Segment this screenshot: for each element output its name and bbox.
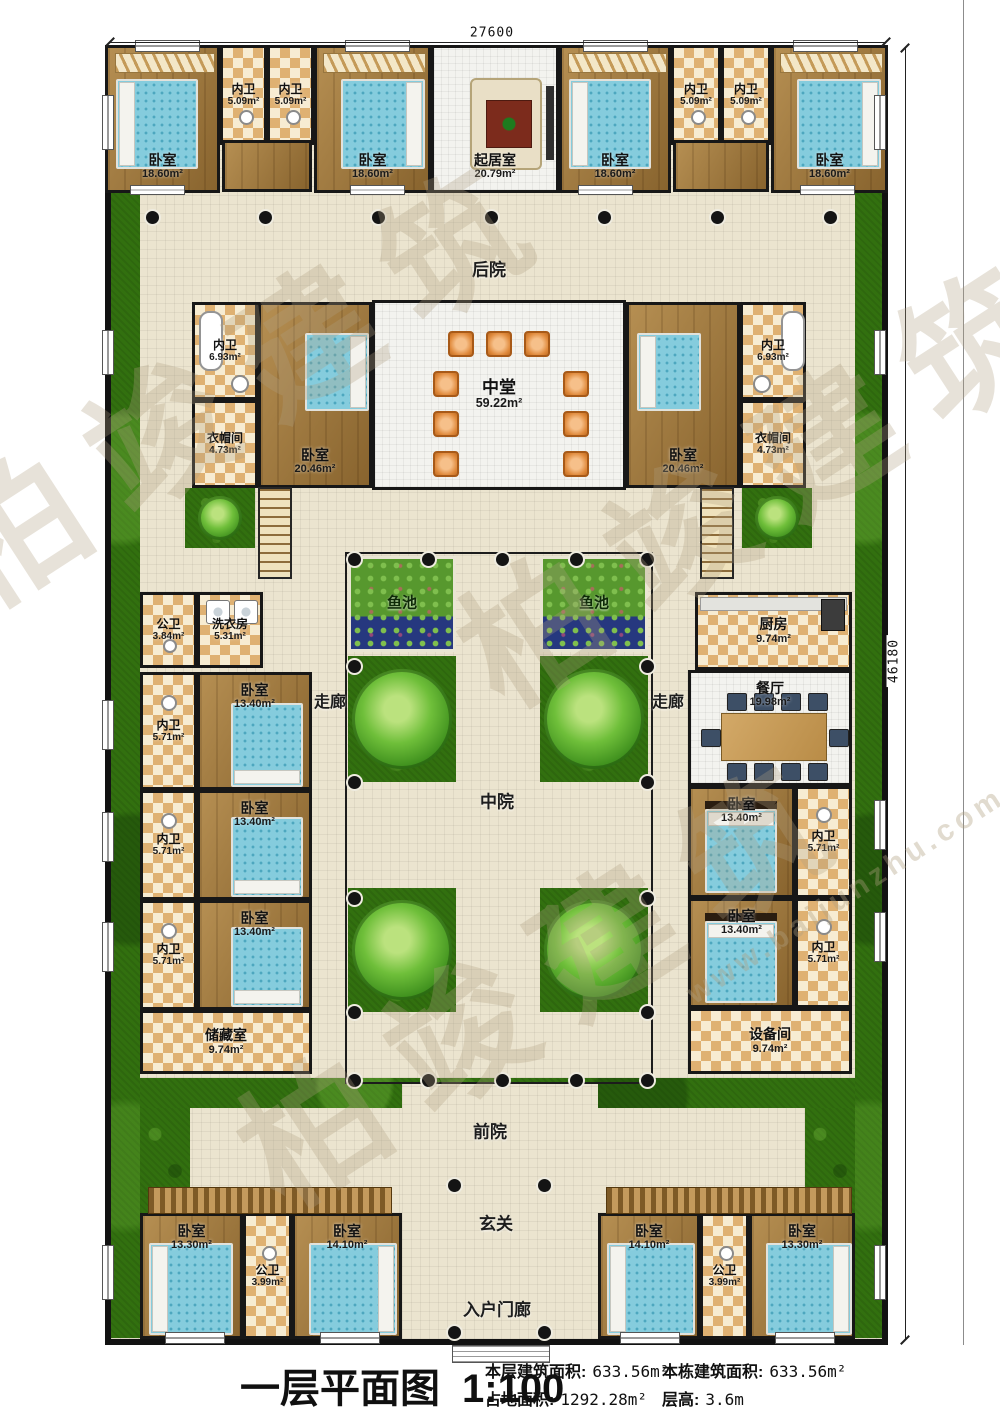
room-area: 13.40m² (721, 812, 762, 824)
column-dot (346, 774, 363, 791)
drawing-title-text: 一层平面图 (240, 1367, 440, 1411)
column-dot (639, 774, 656, 791)
column-dot (446, 1177, 463, 1194)
stat-value: 633.56m² (769, 1362, 846, 1381)
column-dot (346, 1004, 363, 1021)
sink (816, 919, 832, 935)
room-area: 5.71m² (808, 843, 840, 854)
column-dot (494, 551, 511, 568)
stat-label: 层高: (662, 1392, 699, 1409)
wardrobe (568, 53, 667, 73)
stat-floor-area: 本层建筑面积:633.56m² (485, 1358, 669, 1382)
room-area: 5.71m² (808, 954, 840, 965)
room-name: 餐厅 (750, 681, 791, 696)
wardrobe (115, 53, 215, 73)
room-bedroom: 卧室18.60m² (771, 45, 888, 193)
room-bedroom: 卧室14.10m² (598, 1213, 700, 1339)
room-bath: 公卫3.99m² (700, 1213, 749, 1339)
room-area: 5.09m² (275, 96, 307, 107)
room-name: 卧室 (234, 683, 275, 698)
room-name: 内卫 (209, 339, 241, 352)
stat-value: 633.56m² (592, 1362, 669, 1381)
window (874, 1245, 886, 1300)
room-area: 13.30m² (171, 1239, 212, 1251)
window (874, 912, 886, 962)
room-area: 5.71m² (153, 956, 185, 967)
column-dot (346, 890, 363, 907)
room-name: 卧室 (234, 801, 275, 816)
pergola-left (148, 1187, 392, 1214)
sink (239, 110, 254, 125)
room-area: 5.31m² (212, 631, 248, 642)
room-name: 内卫 (730, 83, 762, 96)
room-bedroom: 卧室13.40m² (688, 786, 795, 898)
room-bath: 内卫6.93m² (192, 302, 258, 400)
room-area: 18.60m² (595, 168, 636, 180)
stat-label: 本栋建筑面积: (662, 1364, 763, 1381)
pergola-right (606, 1187, 852, 1214)
sink (262, 1246, 277, 1261)
column-dot (446, 1324, 463, 1341)
room-bath: 内卫5.09m² (671, 45, 721, 145)
room-name: 中堂 (476, 379, 523, 398)
room-area: 3.84m² (153, 631, 185, 642)
column-dot (536, 1177, 553, 1194)
room-area: 18.60m² (809, 168, 850, 180)
room-area: 6.93m² (757, 352, 789, 363)
column-dot (709, 209, 726, 226)
column-dot (639, 1072, 656, 1089)
room-name: 卧室 (327, 1224, 368, 1239)
tv-cabinet (546, 86, 554, 160)
dining-chair (808, 693, 828, 711)
column-dot (639, 658, 656, 675)
dining-chair (727, 693, 747, 711)
stairs-left (258, 487, 292, 579)
window (102, 1245, 114, 1300)
room-name: 衣帽间 (207, 432, 243, 445)
window (165, 1332, 225, 1344)
column-dot (494, 1072, 511, 1089)
room-bedroom: 卧室14.10m² (292, 1213, 402, 1339)
bed (766, 1243, 852, 1335)
room-area: 13.30m² (782, 1239, 823, 1251)
column-dot (483, 209, 500, 226)
room-name: 卧室 (352, 153, 393, 168)
room-name: 内卫 (275, 83, 307, 96)
corridor-right-label: 走廊 (652, 688, 684, 712)
room-area: 3.99m² (709, 1277, 741, 1288)
window (874, 95, 886, 150)
room-bedroom: 卧室13.40m² (197, 900, 312, 1010)
room-bath: 公卫3.99m² (243, 1213, 292, 1339)
column-dot (144, 209, 161, 226)
room-area: 14.10m² (327, 1239, 368, 1251)
column-dot (420, 551, 437, 568)
courtyard-boundary (345, 552, 653, 1084)
room-name: 内卫 (228, 83, 260, 96)
column-dot (536, 1324, 553, 1341)
room-name: 内卫 (680, 83, 712, 96)
room-area: 5.09m² (680, 96, 712, 107)
chair (486, 331, 512, 357)
chair (433, 371, 459, 397)
bedroom-hall (673, 140, 769, 192)
room-name: 卧室 (142, 153, 183, 168)
bed (231, 703, 303, 787)
window (320, 1332, 380, 1344)
window (874, 330, 886, 375)
chair (563, 371, 589, 397)
sink (719, 1246, 734, 1261)
porch-label: 入户门廊 (463, 1296, 531, 1321)
stat-value: 3.6m (705, 1390, 744, 1409)
wardrobe (780, 53, 883, 73)
stat-label: 本层建筑面积: (485, 1364, 586, 1381)
room-name: 卧室 (721, 909, 762, 924)
dining-chair (808, 763, 828, 781)
room-utility: 设备间9.74m² (688, 1008, 852, 1074)
bed (637, 333, 701, 411)
bed (231, 817, 303, 897)
bed (309, 1243, 397, 1335)
stat-floor-height: 层高:3.6m (662, 1386, 744, 1410)
room-name: 卧室 (595, 153, 636, 168)
window (130, 185, 185, 195)
room-bedroom: 卧室18.60m² (314, 45, 431, 193)
bed (305, 333, 369, 411)
room-name: 卧室 (234, 911, 275, 926)
sink (161, 695, 177, 711)
midyard-label: 中院 (480, 788, 514, 813)
chair (448, 331, 474, 357)
bed (149, 1243, 233, 1335)
room-name: 卧室 (171, 1224, 212, 1239)
room-area: 9.74m² (749, 1043, 791, 1055)
room-bath: 公卫3.84m² (140, 592, 197, 668)
sink (816, 807, 832, 823)
bed (607, 1243, 695, 1335)
backyard-label: 后院 (472, 256, 506, 281)
room-main-hall: 中堂59.22m² (372, 300, 626, 490)
rug (486, 100, 532, 148)
column-dot (346, 551, 363, 568)
window (775, 1332, 835, 1344)
window (800, 185, 855, 195)
room-name: 卧室 (629, 1224, 670, 1239)
stat-land-area: 占地面积:1292.28m² (485, 1386, 647, 1410)
tree (755, 496, 799, 540)
room-area: 13.40m² (234, 698, 275, 710)
bedroom-hall (222, 140, 312, 192)
room-bath: 内卫5.71m² (795, 786, 852, 898)
room-name: 洗衣房 (212, 618, 248, 631)
dining-table (721, 713, 827, 761)
column-dot (346, 658, 363, 675)
dining-chair (727, 763, 747, 781)
window (102, 330, 114, 375)
window (102, 812, 114, 862)
room-laundry: 洗衣房5.31m² (197, 592, 263, 668)
room-living: 起居室20.79m² (431, 45, 559, 193)
room-area: 9.74m² (756, 633, 791, 645)
column-dot (596, 209, 613, 226)
room-name: 公卫 (709, 1264, 741, 1277)
stat-value: 1292.28m² (560, 1390, 647, 1409)
corridor-left-label: 走廊 (314, 688, 346, 712)
chair (524, 331, 550, 357)
chair (563, 411, 589, 437)
room-area: 5.71m² (153, 732, 185, 743)
room-area: 18.60m² (352, 168, 393, 180)
room-area: 5.09m² (730, 96, 762, 107)
page-edge-line (963, 0, 964, 1345)
room-area: 5.71m² (153, 846, 185, 857)
room-bedroom: 卧室20.46m² (258, 302, 372, 488)
room-bath: 内卫5.71m² (795, 898, 852, 1008)
column-dot (346, 1072, 363, 1089)
room-name: 厨房 (756, 617, 791, 632)
room-closet: 衣帽间4.73m² (192, 400, 258, 488)
column-dot (370, 209, 387, 226)
window (350, 185, 405, 195)
room-area: 14.10m² (629, 1239, 670, 1251)
room-name: 公卫 (252, 1264, 284, 1277)
room-name: 设备间 (749, 1027, 791, 1042)
dimension-right-value: 46180 (887, 635, 902, 687)
room-area: 6.93m² (209, 352, 241, 363)
room-bath: 内卫5.09m² (220, 45, 267, 145)
room-area: 19.98m² (750, 696, 791, 708)
window (620, 1332, 680, 1344)
sink (691, 110, 706, 125)
room-bath: 内卫5.71m² (140, 672, 197, 790)
room-name: 卧室 (721, 797, 762, 812)
room-closet: 衣帽间4.73m² (740, 400, 806, 488)
room-name: 内卫 (808, 941, 840, 954)
column-dot (639, 1004, 656, 1021)
window (102, 95, 114, 150)
room-name: 卧室 (782, 1224, 823, 1239)
frontyard-label: 前院 (473, 1118, 507, 1143)
room-bath: 内卫6.93m² (740, 302, 806, 400)
sink (741, 110, 756, 125)
room-bath: 内卫5.71m² (140, 900, 197, 1010)
stat-label: 占地面积: (485, 1392, 554, 1409)
room-area: 13.40m² (234, 926, 275, 938)
foyer-label: 玄关 (479, 1210, 513, 1235)
wardrobe (323, 53, 426, 73)
room-bath: 内卫5.71m² (140, 790, 197, 900)
room-name: 内卫 (153, 833, 185, 846)
room-name: 衣帽间 (755, 432, 791, 445)
room-name: 内卫 (757, 339, 789, 352)
chair (433, 411, 459, 437)
floor-plan-page: 卧室18.60m² 内卫5.09m² 内卫5.09m² 卧室18.60m² 起居… (0, 0, 1000, 1414)
room-area: 20.46m² (663, 463, 704, 475)
room-bedroom: 卧室18.60m² (559, 45, 671, 193)
column-dot (639, 890, 656, 907)
room-area: 59.22m² (476, 397, 523, 411)
room-bedroom: 卧室13.40m² (688, 898, 795, 1008)
window (102, 700, 114, 750)
room-area: 13.40m² (721, 924, 762, 936)
room-bath: 内卫5.09m² (267, 45, 314, 145)
stove (821, 599, 845, 631)
room-name: 内卫 (808, 830, 840, 843)
room-area: 20.46m² (295, 463, 336, 475)
sink (161, 813, 177, 829)
room-storage: 储藏室9.74m² (140, 1010, 312, 1074)
room-name: 储藏室 (205, 1028, 247, 1043)
dining-chair (829, 729, 849, 747)
chair (433, 451, 459, 477)
room-area: 5.09m² (228, 96, 260, 107)
dining-chair (701, 729, 721, 747)
room-area: 20.79m² (474, 168, 516, 180)
column-dot (568, 551, 585, 568)
bed (231, 927, 303, 1007)
room-bedroom: 卧室18.60m² (105, 45, 220, 193)
room-bedroom: 卧室13.30m² (749, 1213, 855, 1339)
room-name: 公卫 (153, 618, 185, 631)
room-area: 3.99m² (252, 1277, 284, 1288)
room-dining: 餐厅19.98m² (688, 670, 852, 786)
sink (231, 375, 249, 393)
room-bath: 内卫5.09m² (721, 45, 771, 145)
tree (198, 496, 242, 540)
room-bedroom: 卧室20.46m² (626, 302, 740, 488)
room-kitchen: 厨房9.74m² (695, 592, 852, 670)
column-dot (257, 209, 274, 226)
room-area: 4.73m² (207, 445, 243, 456)
sink (286, 110, 301, 125)
room-name: 卧室 (295, 448, 336, 463)
chair (563, 451, 589, 477)
room-area: 18.60m² (142, 168, 183, 180)
room-name: 内卫 (153, 943, 185, 956)
room-area: 9.74m² (205, 1044, 247, 1056)
column-dot (420, 1072, 437, 1089)
room-bedroom: 卧室13.40m² (197, 790, 312, 900)
column-dot (822, 209, 839, 226)
column-dot (639, 551, 656, 568)
dimension-line-right (905, 48, 906, 1340)
sink (753, 375, 771, 393)
room-name: 卧室 (663, 448, 704, 463)
room-name: 卧室 (809, 153, 850, 168)
room-name: 起居室 (474, 153, 516, 168)
room-bedroom: 卧室13.30m² (140, 1213, 243, 1339)
stat-building-area: 本栋建筑面积:633.56m² (662, 1358, 846, 1382)
room-area: 13.40m² (234, 816, 275, 828)
window (578, 185, 633, 195)
room-name: 内卫 (153, 719, 185, 732)
room-area: 4.73m² (755, 445, 791, 456)
dining-chair (781, 763, 801, 781)
window (874, 800, 886, 850)
sink (161, 923, 177, 939)
dimension-top-value: 27600 (466, 26, 518, 41)
column-dot (568, 1072, 585, 1089)
stairs-right (700, 487, 734, 579)
room-bedroom: 卧室13.40m² (197, 672, 312, 790)
dimension-line-top (110, 42, 886, 43)
window (102, 922, 114, 972)
dining-chair (754, 763, 774, 781)
